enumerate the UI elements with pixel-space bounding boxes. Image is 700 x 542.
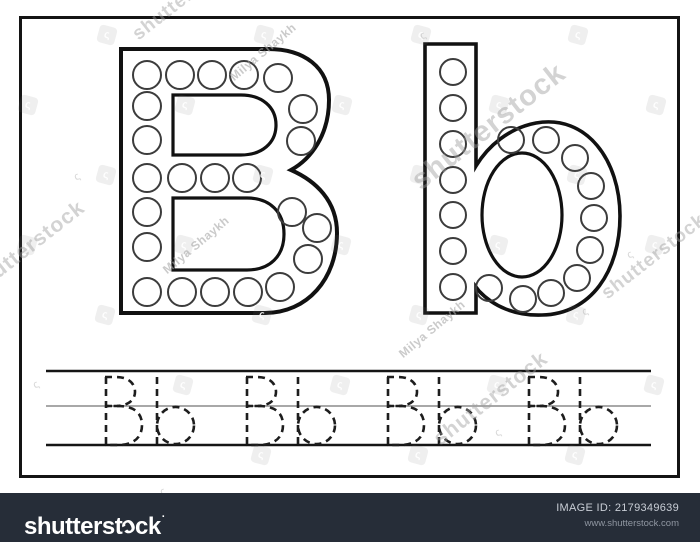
image-id-label: IMAGE ID: — [556, 502, 611, 514]
tracing-letter-pair — [528, 377, 617, 445]
website-url: www.shutterstock.com — [556, 518, 679, 529]
lowercase-letter-outline — [425, 44, 620, 315]
image-id-value: 2179349639 — [615, 502, 679, 514]
shutterstock-logo: shutterstɔck· — [24, 493, 165, 542]
tracing-letter-pair — [105, 377, 194, 445]
logo-trademark-dot: · — [162, 511, 165, 523]
tracing-letter-pair — [387, 377, 476, 445]
image-id: IMAGE ID: 2179349639 — [556, 502, 679, 514]
letter-b-dot-worksheet — [0, 0, 700, 493]
tracing-guide-lines — [46, 371, 651, 445]
image-id-block: IMAGE ID: 2179349639 www.shutterstock.co… — [556, 502, 679, 529]
footer-bar: shutterstɔck· IMAGE ID: 2179349639 www.s… — [0, 493, 700, 542]
tracing-letter-pair — [246, 377, 335, 445]
uppercase-letter-outline — [121, 49, 337, 313]
stock-image-preview: ςςςςςςςςςςςςςςςςςςςςςςςςςςςςςςςςςςςςshut… — [0, 0, 700, 542]
logo-text-prefix: shutterst — [24, 513, 122, 540]
